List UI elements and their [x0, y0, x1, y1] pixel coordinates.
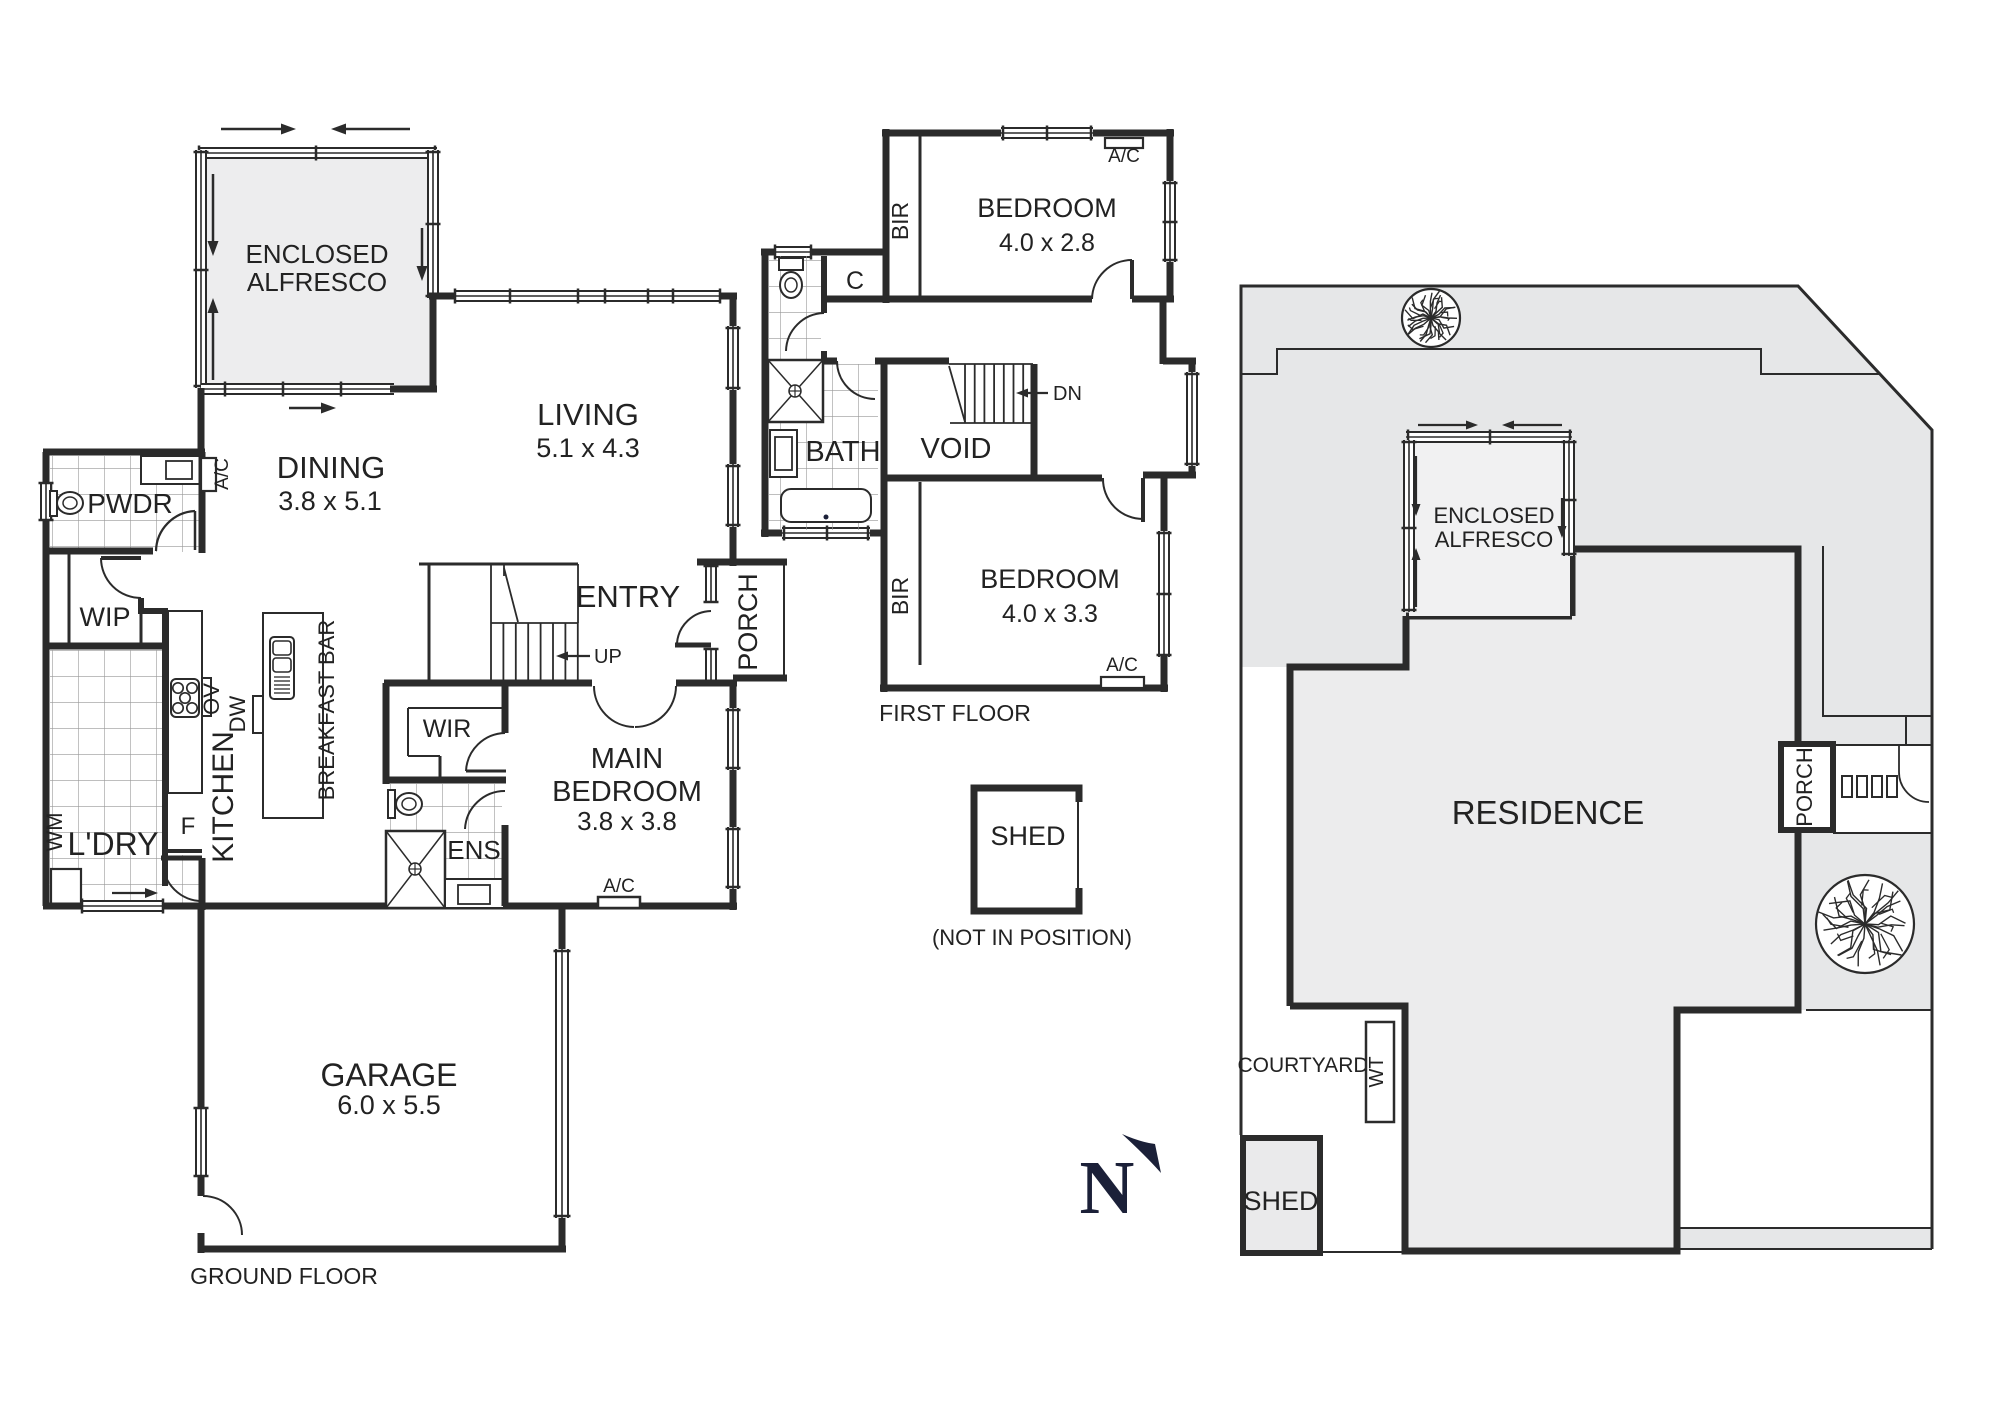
svg-text:WIR: WIR — [423, 715, 472, 743]
svg-text:WIP: WIP — [80, 602, 131, 632]
svg-text:RESIDENCE: RESIDENCE — [1452, 794, 1645, 831]
svg-text:3.8 x 5.1: 3.8 x 5.1 — [278, 486, 382, 516]
svg-text:4.0 x 3.3: 4.0 x 3.3 — [1002, 600, 1098, 628]
svg-text:VOID: VOID — [921, 433, 992, 465]
svg-text:WT: WT — [1366, 1056, 1388, 1087]
svg-text:PORCH: PORCH — [1792, 747, 1817, 826]
svg-text:ENCLOSED: ENCLOSED — [245, 239, 388, 269]
svg-text:ALFRESCO: ALFRESCO — [247, 267, 387, 297]
svg-text:F: F — [181, 813, 196, 840]
svg-text:A/C: A/C — [212, 458, 233, 490]
svg-text:N: N — [1080, 1146, 1135, 1230]
svg-text:BIR: BIR — [887, 577, 913, 615]
svg-text:BREAKFAST BAR: BREAKFAST BAR — [314, 620, 339, 801]
svg-text:OV: OV — [199, 683, 224, 715]
svg-text:GROUND FLOOR: GROUND FLOOR — [190, 1263, 378, 1289]
svg-text:COURTYARD: COURTYARD — [1237, 1054, 1368, 1077]
svg-text:C: C — [846, 267, 864, 295]
svg-text:6.0 x 5.5: 6.0 x 5.5 — [337, 1090, 441, 1120]
svg-text:PORCH: PORCH — [733, 573, 763, 671]
svg-text:PWDR: PWDR — [87, 488, 173, 519]
svg-text:BEDROOM: BEDROOM — [980, 564, 1120, 594]
svg-text:ENTRY: ENTRY — [576, 579, 681, 614]
svg-text:BATH: BATH — [805, 436, 880, 468]
svg-text:ENCLOSED: ENCLOSED — [1433, 503, 1554, 528]
svg-text:WM: WM — [42, 812, 67, 851]
svg-text:A/C: A/C — [603, 876, 635, 897]
svg-text:DN: DN — [1053, 383, 1082, 405]
svg-text:4.0 x 2.8: 4.0 x 2.8 — [999, 229, 1095, 257]
svg-text:BIR: BIR — [887, 202, 913, 240]
svg-text:A/C: A/C — [1108, 146, 1140, 167]
svg-text:DW: DW — [225, 695, 250, 732]
svg-text:BEDROOM: BEDROOM — [552, 776, 702, 808]
svg-text:L'DRY: L'DRY — [68, 826, 159, 862]
svg-text:FIRST FLOOR: FIRST FLOOR — [879, 700, 1031, 726]
svg-text:ALFRESCO: ALFRESCO — [1435, 527, 1554, 552]
svg-text:DINING: DINING — [277, 450, 386, 485]
svg-text:MAIN: MAIN — [591, 743, 664, 775]
svg-text:BEDROOM: BEDROOM — [977, 193, 1117, 223]
svg-text:UP: UP — [594, 646, 622, 668]
svg-text:KITCHEN: KITCHEN — [207, 731, 240, 863]
svg-text:ENS: ENS — [447, 835, 500, 865]
svg-text:LIVING: LIVING — [537, 397, 639, 432]
svg-text:SHED: SHED — [1243, 1186, 1318, 1216]
svg-text:A/C: A/C — [1106, 655, 1138, 676]
svg-text:(NOT IN POSITION): (NOT IN POSITION) — [932, 925, 1132, 950]
svg-text:SHED: SHED — [990, 821, 1065, 851]
svg-text:3.8 x 3.8: 3.8 x 3.8 — [577, 806, 677, 836]
svg-text:5.1 x 4.3: 5.1 x 4.3 — [536, 433, 640, 463]
svg-text:GARAGE: GARAGE — [321, 1057, 458, 1093]
